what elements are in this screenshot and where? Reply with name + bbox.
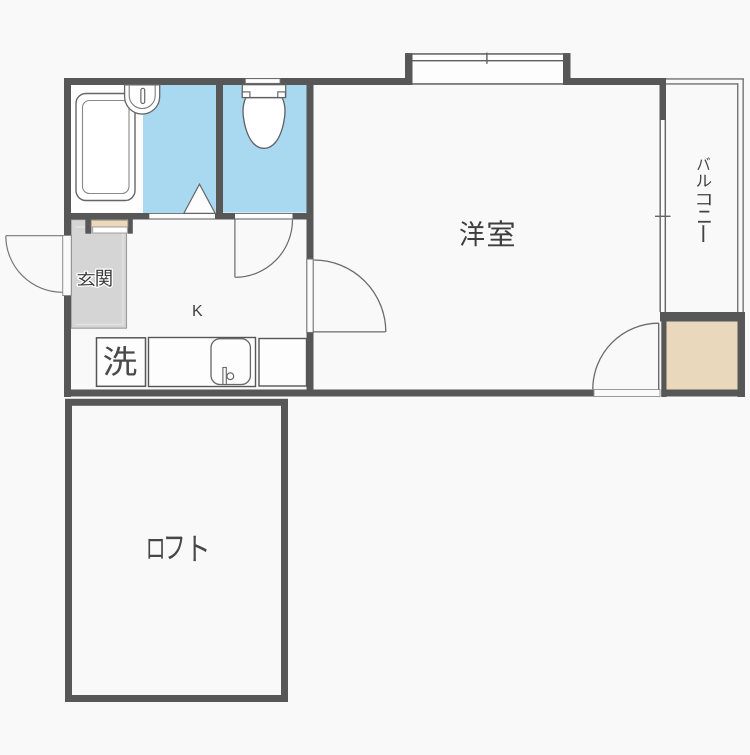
svg-text:K: K bbox=[192, 303, 203, 320]
